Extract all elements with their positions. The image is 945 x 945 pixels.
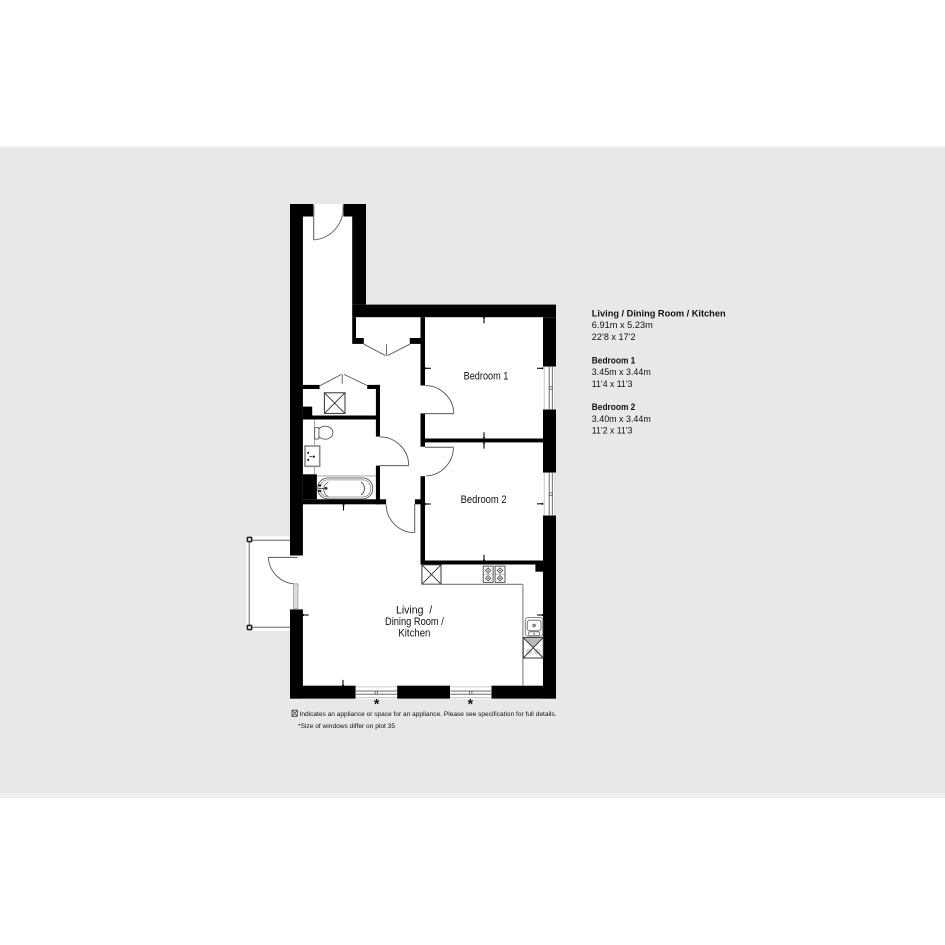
svg-text:Living /: Living / — [396, 605, 433, 617]
svg-text:3.45m x 3.44m: 3.45m x 3.44m — [592, 367, 651, 377]
svg-text:Kitchen: Kitchen — [398, 628, 430, 640]
svg-text:Dining Room /: Dining Room / — [385, 616, 445, 628]
svg-text:22’8 x 17’2: 22’8 x 17’2 — [592, 332, 636, 342]
svg-text:3.40m x 3.44m: 3.40m x 3.44m — [592, 414, 651, 424]
svg-text:Bedroom 2: Bedroom 2 — [461, 494, 507, 506]
svg-text:6.91m x 5.23m: 6.91m x 5.23m — [592, 320, 653, 330]
svg-text:11’2 x 11’3: 11’2 x 11’3 — [592, 426, 633, 436]
svg-text:*: * — [468, 696, 474, 712]
svg-text:*: * — [374, 696, 380, 712]
svg-text:Bedroom 1: Bedroom 1 — [592, 356, 636, 366]
svg-text:Indicates an appliance or spac: Indicates an appliance or space for an a… — [300, 711, 557, 718]
svg-text:Living / Dining Room / Kitchen: Living / Dining Room / Kitchen — [592, 309, 726, 319]
svg-text:*Size of windows differ on plo: *Size of windows differ on plot 35 — [298, 723, 395, 730]
svg-text:11’4 x 11’3: 11’4 x 11’3 — [592, 379, 633, 389]
svg-text:Bedroom 2: Bedroom 2 — [592, 402, 636, 412]
svg-text:Bedroom 1: Bedroom 1 — [464, 370, 509, 382]
